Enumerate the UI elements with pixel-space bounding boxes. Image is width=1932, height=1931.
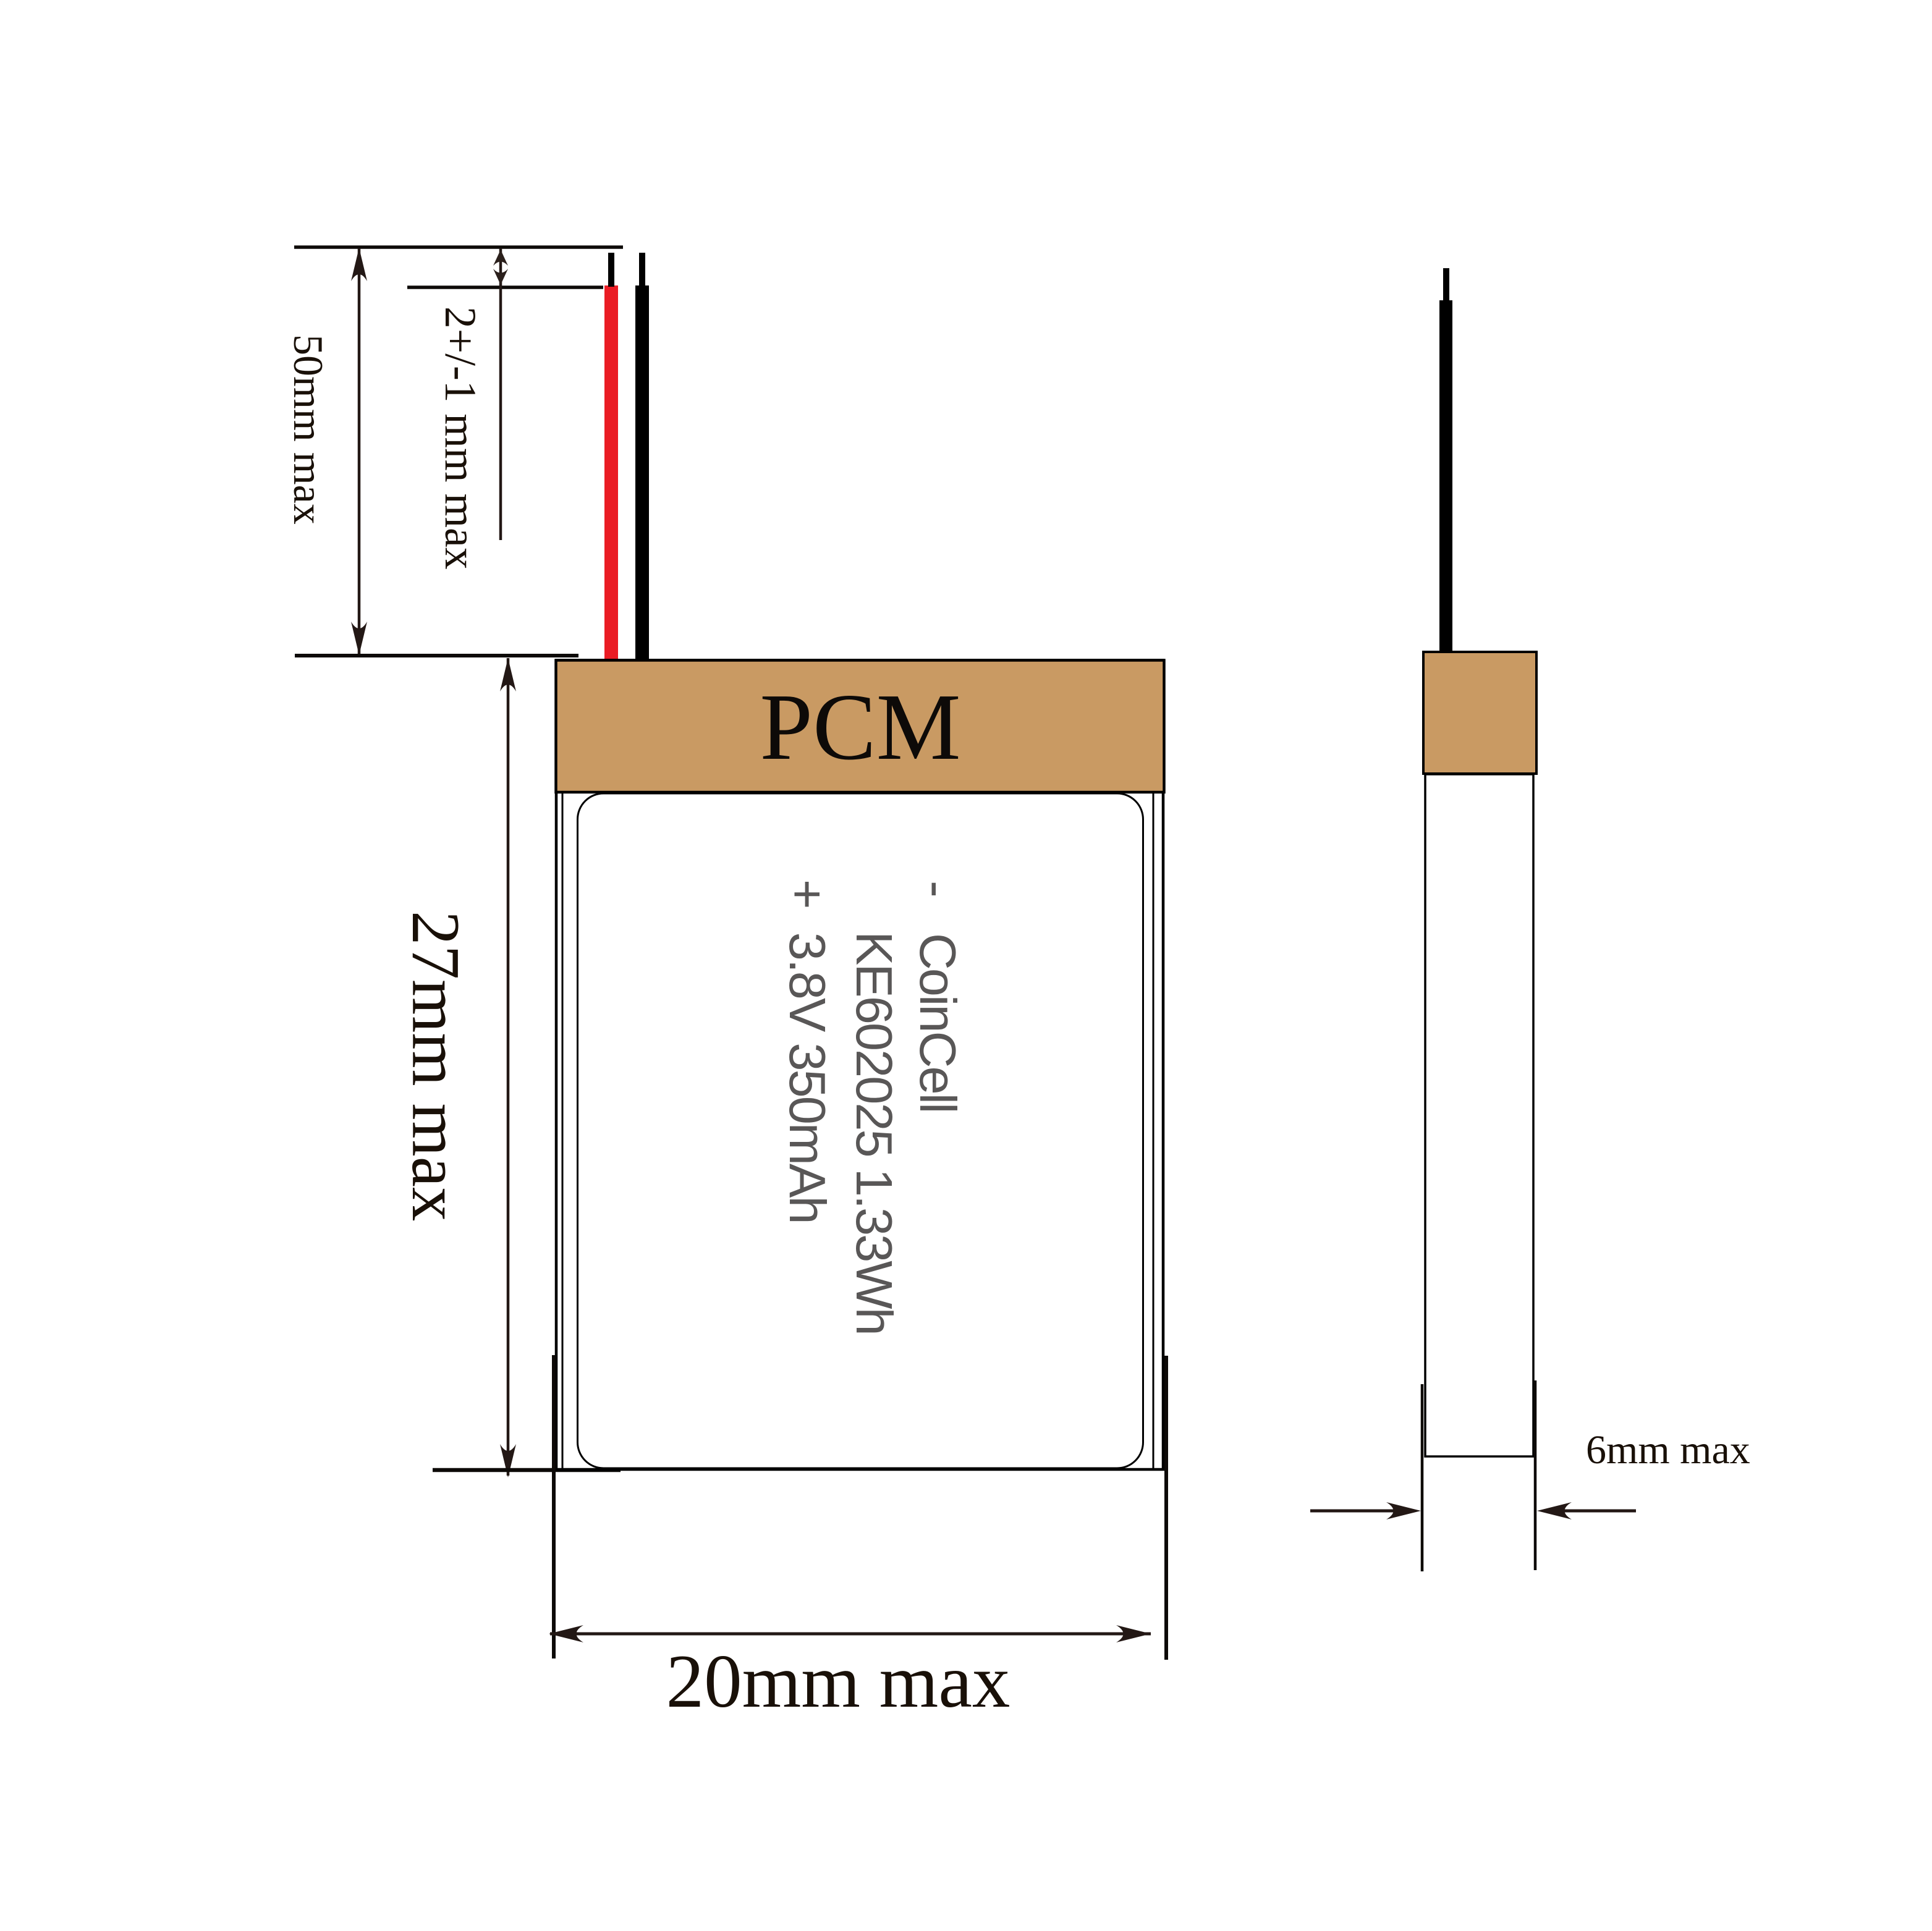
svg-text:20mm max: 20mm max [666, 1639, 1010, 1723]
svg-text:PCM: PCM [760, 675, 960, 780]
svg-text:2+/-1 mm max: 2+/-1 mm max [436, 306, 485, 570]
svg-text:6mm max: 6mm max [1586, 1427, 1750, 1473]
svg-text:27mm max: 27mm max [397, 911, 473, 1222]
svg-text:50mm max: 50mm max [285, 334, 332, 525]
svg-text:- CoinCell: - CoinCell [909, 881, 967, 1112]
svg-text:KE602025 1.33Wh: KE602025 1.33Wh [845, 931, 903, 1334]
svg-text:+ 3.8V 350mAh: + 3.8V 350mAh [779, 879, 836, 1223]
